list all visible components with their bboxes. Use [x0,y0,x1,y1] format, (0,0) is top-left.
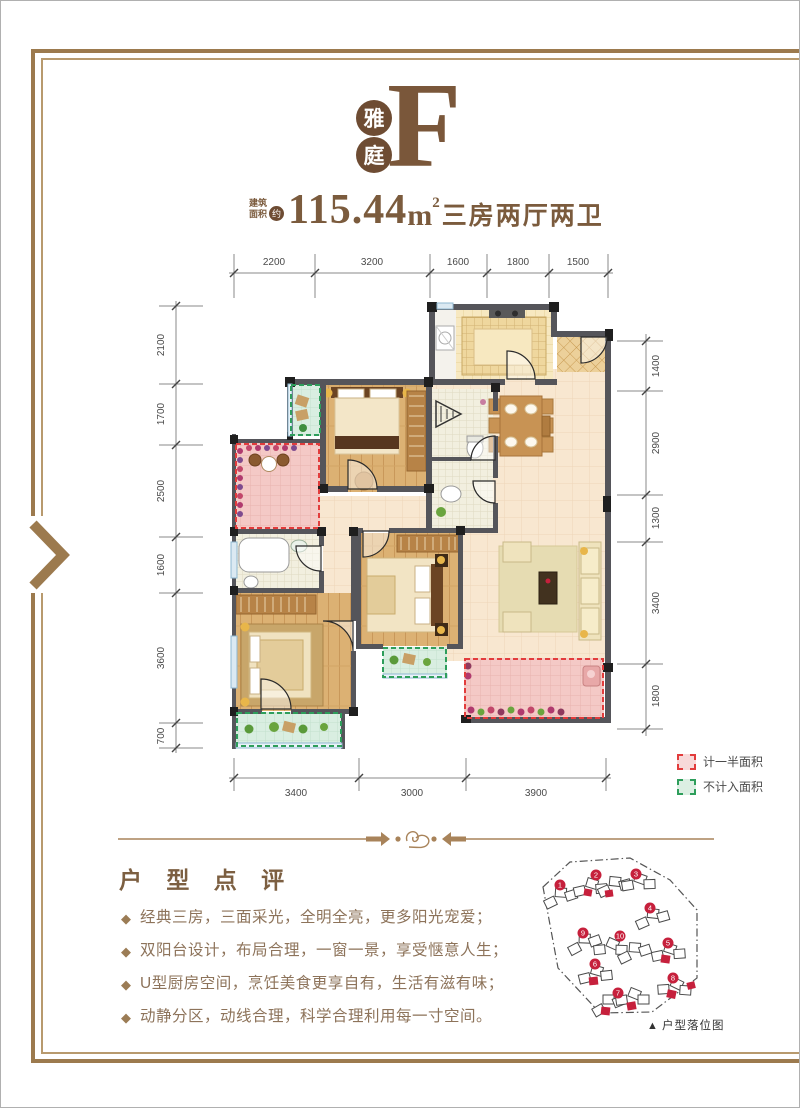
dim-label: 3900 [525,788,548,799]
building-number: 10 [616,932,624,941]
frame-bottom-thin [41,1052,799,1054]
dim-label: 2100 [156,333,167,356]
review-item: ◆ 动静分区，动线合理，科学合理利用每一寸空间。 [119,1007,569,1027]
floorplan-sheet: 雅 庭 F 建筑 面积 约 115.44 m2 三房两厅两卫 [0,0,800,1108]
area-value: 115.44 [288,193,407,229]
legend-row-excluded-area: 不计入面积 [677,778,763,795]
dim-label: 2500 [156,479,167,502]
legend-label: 不计入面积 [703,778,763,795]
frame-top [31,49,799,53]
frame-bottom [31,1059,799,1063]
dim-label: 3400 [285,788,308,799]
half-area-swatch-icon [677,754,696,770]
dim-label: 1700 [156,402,167,425]
dim-label: 3000 [401,788,424,799]
legend-row-half-area: 计一半面积 [677,753,763,770]
floorplan-svg: 2200 3200 1600 1800 1500 2100 1700 2500 … [131,246,701,811]
layout-text: 三房两厅两卫 [442,204,604,229]
chevron-icon [9,516,71,594]
dim-label: 700 [156,727,167,744]
building-number: 5 [666,939,670,948]
building-number: 4 [648,904,652,913]
dim-label: 1800 [651,684,662,707]
area-legend: 计一半面积 不计入面积 [677,753,763,803]
review-title: 户 型 点 评 [119,861,569,895]
dim-label: 1800 [507,257,530,268]
area-approx-badge: 约 [269,206,284,221]
dim-label: 1600 [156,553,167,576]
triangle-marker-icon: ▲ [647,1020,658,1032]
diamond-bullet-icon: ◆ [121,944,131,960]
siteplan-svg: 1 2 3 4 5 6 7 8 9 10 ▲ 户型落位图 [529,849,769,1049]
building-number: 1 [558,881,562,890]
building-number: 8 [671,974,675,983]
review-text: 双阳台设计，布局合理，一窗一景，享受惬意人生； [140,941,508,961]
frame-left-thin-top [41,58,43,516]
diamond-bullet-icon: ◆ [121,1010,131,1026]
diamond-bullet-icon: ◆ [121,977,131,993]
dim-label: 3400 [651,591,662,614]
building-number: 2 [594,871,598,880]
excluded-area-swatch-icon [677,779,696,795]
frame-left-bottom [31,593,35,1059]
legend-label: 计一半面积 [703,753,763,770]
dim-label: 1600 [447,257,470,268]
dim-label: 2900 [651,431,662,454]
logo-char-top: 雅 [364,103,385,133]
dim-label: 1300 [651,506,662,529]
review-text: 经典三房，三面采光，全明全亮，更多阳光宠爱； [140,908,492,928]
review-text: 动静分区，动线合理，科学合理利用每一寸空间。 [140,1007,492,1027]
siteplan-caption: ▲ 户型落位图 [647,1018,725,1032]
review-item: ◆ 双阳台设计，布局合理，一窗一景，享受惬意人生； [119,941,569,961]
area-label: 建筑 面积 [249,198,267,221]
review-section: 户 型 点 评 ◆ 经典三房，三面采光，全明全亮，更多阳光宠爱； ◆ 双阳台设计… [119,861,569,1028]
review-item: ◆ 经典三房，三面采光，全明全亮，更多阳光宠爱； [119,908,569,928]
area-unit: m2 [407,197,440,229]
review-item: ◆ U型厨房空间，烹饪美食更享自有，生活有滋有味； [119,974,569,994]
building-number: 7 [616,989,620,998]
frame-left-thin-bottom [41,593,43,1052]
unit-letter: F [387,65,462,187]
dim-label: 1400 [651,354,662,377]
dim-label: 2200 [263,257,286,268]
dim-label: 3200 [361,257,384,268]
logo-char-bottom: 庭 [364,140,385,170]
review-text: U型厨房空间，烹饪美食更享自有，生活有滋有味； [140,974,504,994]
diamond-bullet-icon: ◆ [121,911,131,927]
area-row: 建筑 面积 约 115.44 m2 三房两厅两卫 [249,193,604,229]
building-number: 3 [634,870,638,879]
building-number: 9 [581,929,585,938]
dim-label: 3600 [156,646,167,669]
building-number: 6 [593,960,597,969]
frame-left-top [31,49,35,516]
siteplan-caption-text: 户型落位图 [662,1018,725,1032]
dim-label: 1500 [567,257,590,268]
